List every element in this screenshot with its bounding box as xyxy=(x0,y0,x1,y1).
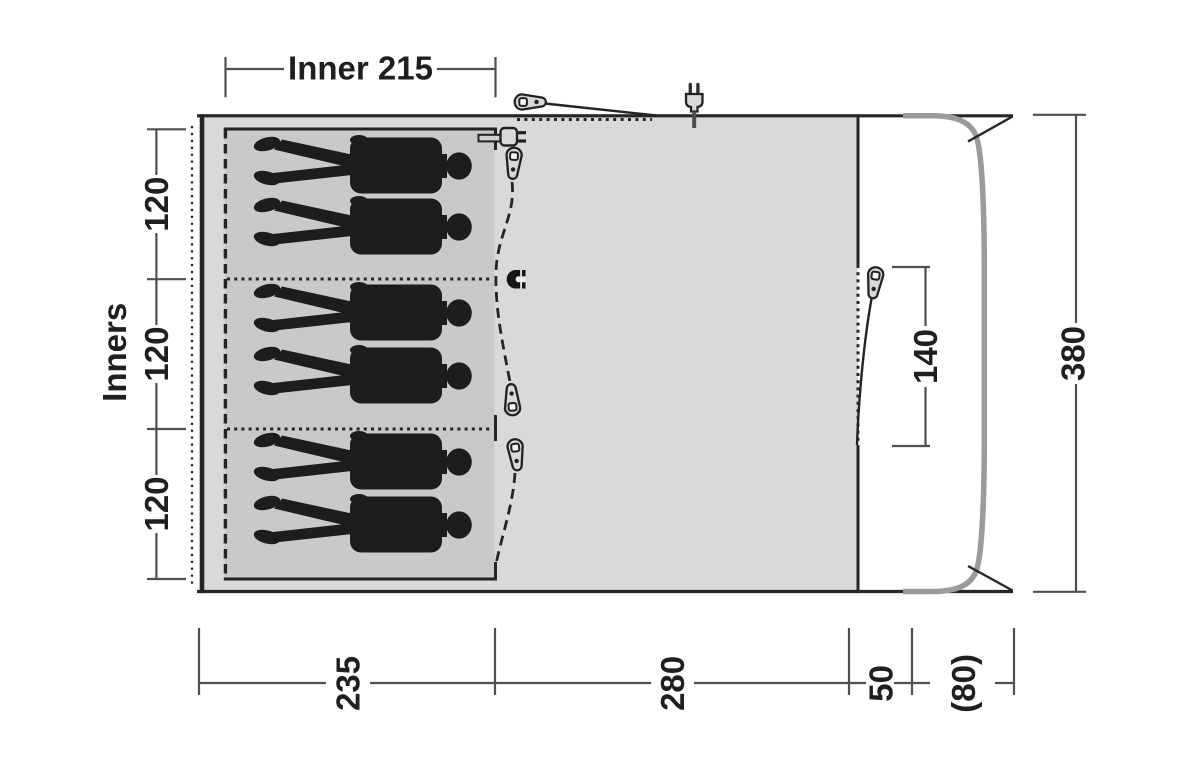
svg-text:Inner 215: Inner 215 xyxy=(288,50,433,87)
svg-text:280: 280 xyxy=(654,656,691,711)
svg-text:(80): (80) xyxy=(945,654,982,713)
svg-text:235: 235 xyxy=(330,656,367,711)
svg-text:Inners: Inners xyxy=(96,303,133,402)
svg-text:140: 140 xyxy=(907,329,944,384)
svg-text:50: 50 xyxy=(863,665,900,702)
svg-text:120: 120 xyxy=(138,177,175,232)
svg-text:120: 120 xyxy=(138,327,175,382)
svg-text:380: 380 xyxy=(1055,326,1092,381)
svg-text:120: 120 xyxy=(138,476,175,531)
